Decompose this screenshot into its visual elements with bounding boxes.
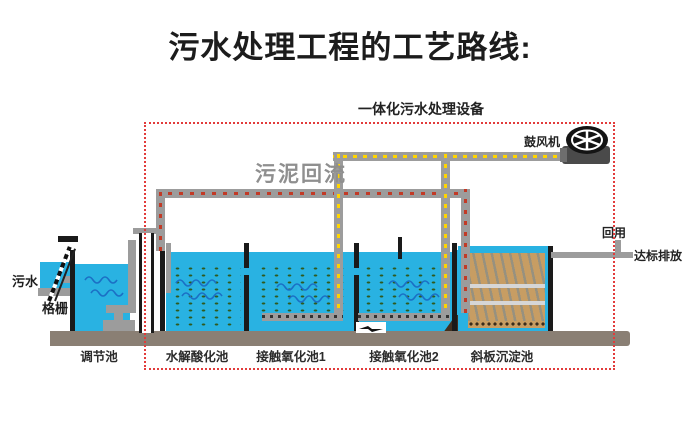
wave-mark [84, 274, 122, 286]
influent-label: 污水 [12, 271, 38, 290]
tank-label-regulation: 调节池 [69, 346, 129, 365]
page-title: 污水处理工程的工艺路线: [0, 22, 700, 67]
wave-mark [90, 287, 128, 299]
discharge-label: 达标排放 [634, 247, 682, 264]
airlift-elbow [106, 305, 136, 313]
screen-label: 格栅 [42, 298, 68, 317]
airlift-pipe-left [128, 240, 136, 312]
process-diagram: 污水处理工程的工艺路线: [0, 0, 700, 425]
reuse-riser [615, 240, 621, 254]
equipment-boundary-box [144, 122, 615, 370]
screen-top-bar [58, 236, 78, 242]
equipment-label: 一体化污水处理设备 [358, 99, 484, 119]
